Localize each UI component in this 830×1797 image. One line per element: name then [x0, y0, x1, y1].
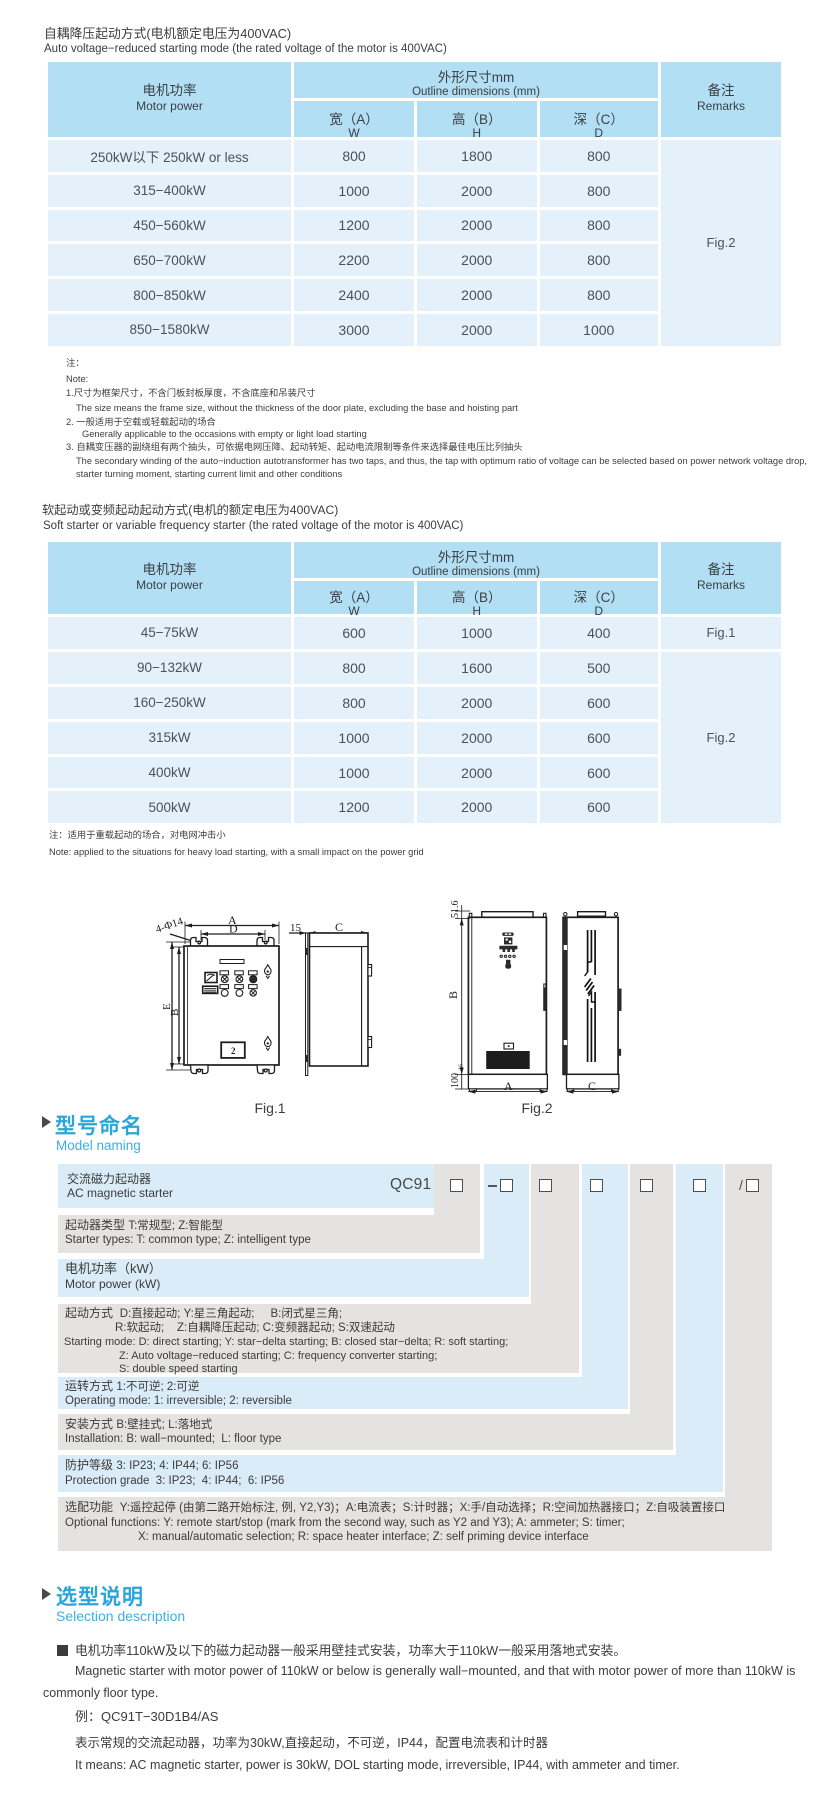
- svg-text:100: 100: [450, 1073, 461, 1088]
- svg-text:A: A: [504, 1079, 513, 1093]
- svg-text:51.6: 51.6: [450, 901, 461, 919]
- svg-text:D: D: [229, 922, 238, 936]
- svg-text:B: B: [169, 1009, 181, 1016]
- svg-text:C: C: [335, 920, 343, 934]
- svg-text:2: 2: [231, 1046, 236, 1056]
- svg-text:B: B: [446, 991, 460, 999]
- svg-text:4-Φ14: 4-Φ14: [154, 915, 185, 936]
- svg-text:16: 16: [459, 1064, 465, 1070]
- svg-text:C: C: [588, 1079, 596, 1093]
